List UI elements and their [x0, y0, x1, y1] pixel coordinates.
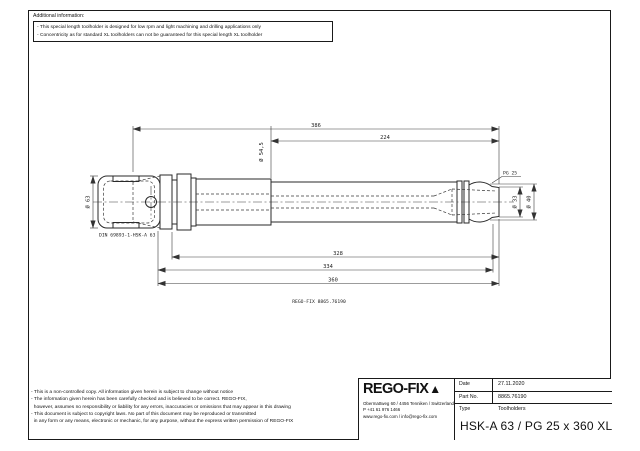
address-line: Obermattweg 60 / 4456 Tenniken / Switzer… — [363, 401, 454, 408]
part-caption: REGO-FIX 8865.76190 — [292, 299, 346, 305]
additional-info-box: - This special length toolholder is desi… — [33, 21, 333, 42]
field-type-label: Type — [455, 404, 493, 416]
dim-nose-diameter: Ø 40 — [526, 196, 533, 209]
company-address: Obermattweg 60 / 4456 Tenniken / Switzer… — [363, 401, 454, 421]
field-partno-value: 8865.76190 — [493, 392, 612, 404]
logo-text: REGO-FIX — [363, 381, 428, 397]
shank-standard-label: DIN 69893-1-HSK-A 63 — [99, 233, 156, 239]
collet-system-label: PG 25 — [503, 171, 517, 177]
legal-line: - This document is subject to copyright … — [31, 411, 293, 418]
drawing-sheet: 386 224 Ø 54,5 Ø 63 Ø 33 Ø 40 328 334 36… — [0, 0, 640, 451]
company-logo: REGO-FIX▲ — [363, 382, 454, 397]
dim-flange-diameter: Ø 63 — [85, 196, 92, 209]
address-line: www.rego-fix.com / info@rego-fix.com — [363, 414, 454, 421]
fields-cell: Date 27.11.2020 Part No. 8865.76190 Type… — [455, 379, 612, 440]
address-line: P +41 61 976 1466 — [363, 407, 454, 414]
toolholder-side-view — [133, 174, 499, 230]
additional-info-label: Additional information: — [33, 13, 333, 19]
dim-length-3: 360 — [328, 278, 338, 284]
dim-tip-diameter: Ø 33 — [512, 196, 519, 209]
legal-line: in any form or any means, electronic or … — [31, 418, 293, 425]
logo-triangle-icon: ▲ — [429, 382, 440, 396]
dim-body-diameter: Ø 54,5 — [258, 142, 265, 161]
field-type-value: Toolholders — [493, 404, 612, 416]
field-date-value: 27.11.2020 — [493, 379, 612, 391]
legal-line: - This is a non-controlled copy. All inf… — [31, 389, 293, 396]
dim-length-1: 328 — [333, 251, 343, 257]
pg25-leader-line — [492, 177, 521, 184]
title-block: REGO-FIX▲ Obermattweg 60 / 4456 Tenniken… — [358, 378, 611, 440]
field-partno: Part No. 8865.76190 — [455, 392, 612, 405]
legal-disclaimer: - This is a non-controlled copy. All inf… — [31, 389, 293, 426]
dim-length-2: 334 — [323, 264, 333, 270]
additional-info-line: - This special length toolholder is desi… — [37, 24, 329, 32]
field-type: Type Toolholders — [455, 404, 612, 416]
legal-line: - The information given herein has been … — [31, 396, 293, 403]
additional-information: Additional information: - This special l… — [33, 13, 333, 42]
company-cell: REGO-FIX▲ Obermattweg 60 / 4456 Tenniken… — [359, 379, 455, 440]
additional-info-line: - Concentricity as for standard XL toolh… — [37, 32, 329, 40]
field-partno-label: Part No. — [455, 392, 493, 404]
field-date-label: Date — [455, 379, 493, 391]
legal-line: however, assumes no responsibility or li… — [31, 404, 293, 411]
dim-overall-length: 386 — [311, 123, 321, 129]
dim-neck-length: 224 — [380, 135, 390, 141]
drawing-title: HSK-A 63 / PG 25 x 360 XL — [455, 416, 612, 433]
field-date: Date 27.11.2020 — [455, 379, 612, 392]
